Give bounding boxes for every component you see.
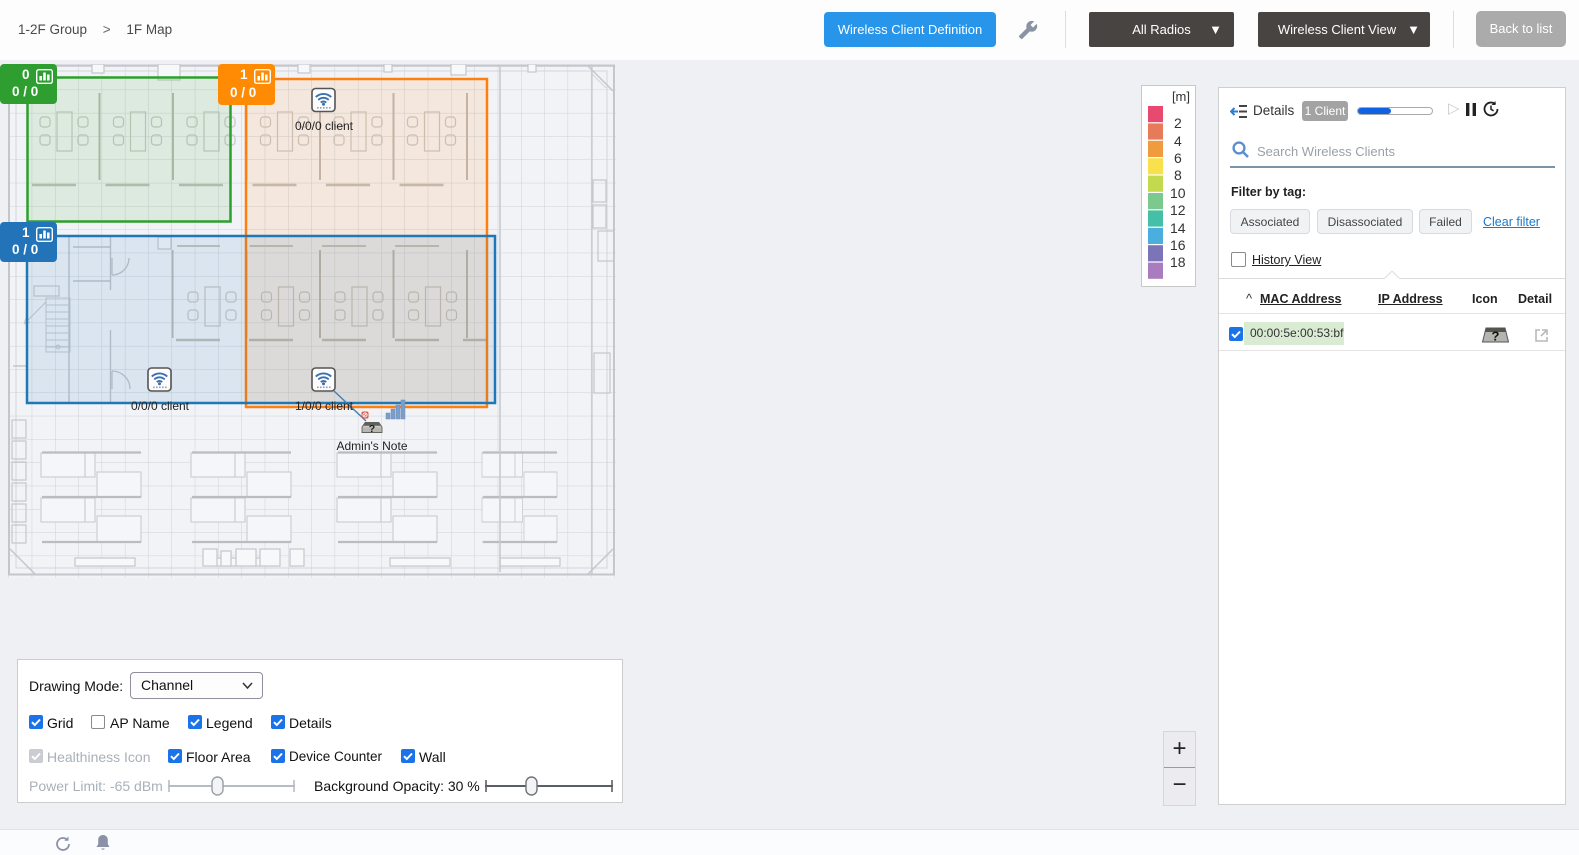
svg-text:18: 18	[1170, 254, 1186, 270]
svg-text:14: 14	[1170, 220, 1186, 236]
svg-text:1/0/0 client: 1/0/0 client	[295, 399, 354, 413]
svg-text:0/0/0 client: 0/0/0 client	[295, 119, 354, 133]
svg-text:16: 16	[1170, 237, 1186, 253]
svg-text:Admin's Note: Admin's Note	[337, 439, 408, 453]
svg-text:6: 6	[1174, 150, 1182, 166]
svg-text:4: 4	[1174, 133, 1182, 149]
svg-text:8: 8	[1174, 167, 1182, 183]
svg-text:0/0/0 client: 0/0/0 client	[131, 399, 190, 413]
svg-text:2: 2	[1174, 115, 1182, 131]
svg-text:?: ?	[1492, 329, 1500, 344]
svg-text:10: 10	[1170, 185, 1186, 201]
svg-text:12: 12	[1170, 202, 1186, 218]
svg-text:?: ?	[369, 423, 375, 435]
